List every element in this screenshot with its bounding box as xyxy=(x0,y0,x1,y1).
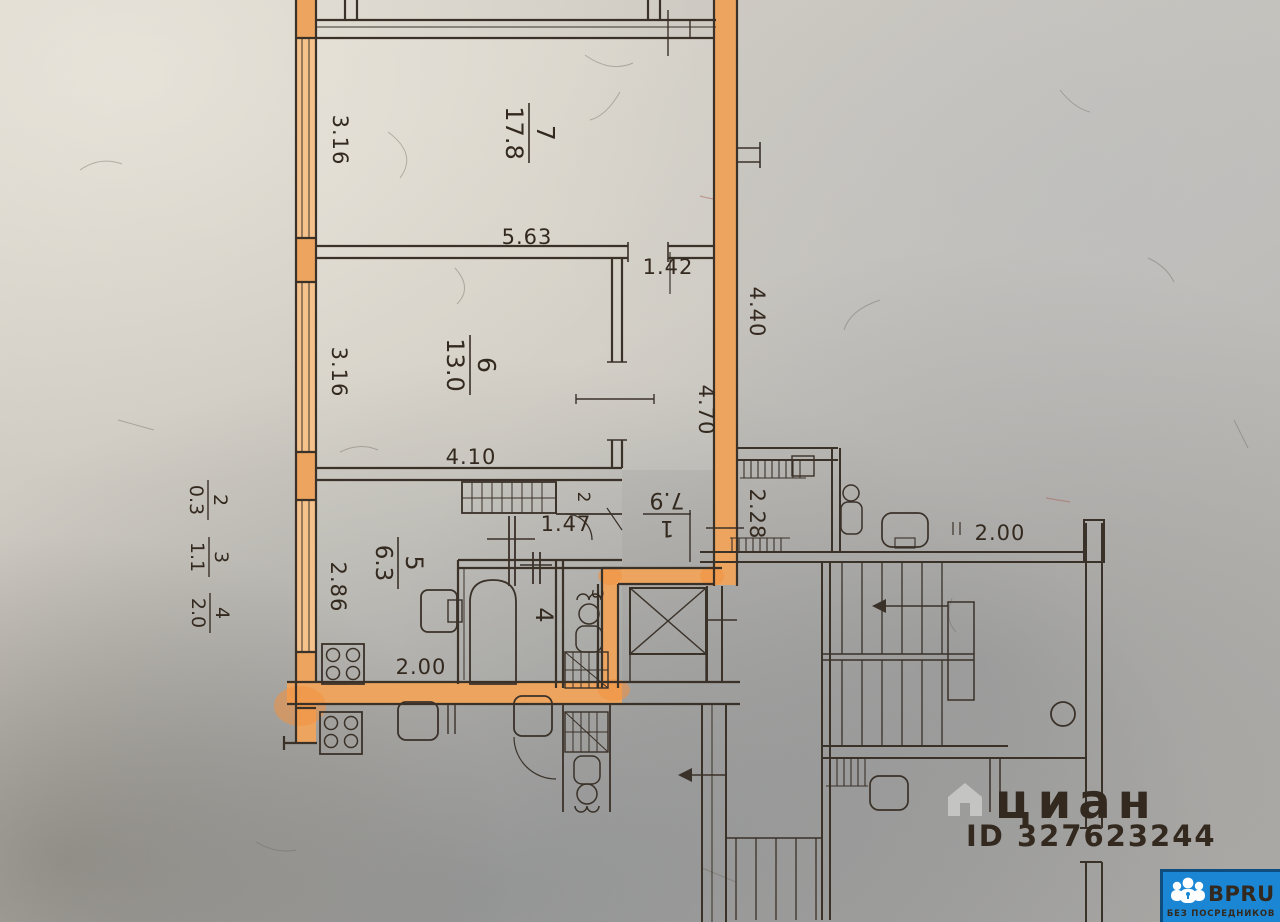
dim-room7-width: 3.16 xyxy=(328,115,352,166)
balcony-4-number: 4 xyxy=(211,607,233,619)
room-1-number: 1 xyxy=(660,515,674,540)
dim-kitchen-width: 2.86 xyxy=(326,562,350,613)
dim-corridor-length: 4.70 xyxy=(694,385,718,436)
badge-brand: BPRU xyxy=(1208,882,1275,906)
balcony-2-area: 0.3 xyxy=(185,485,207,515)
radiator-comb-mid xyxy=(730,538,790,552)
room-6-number: 6 xyxy=(472,357,501,373)
room-6-area: 13.0 xyxy=(441,338,469,391)
dim-kitchen-entry: 1.47 xyxy=(541,512,592,536)
dim-room6-length: 4.10 xyxy=(446,445,497,469)
balcony-2-number: 2 xyxy=(209,494,231,506)
dim-room7-length: 5.63 xyxy=(502,225,553,249)
balcony-3-area: 1.1 xyxy=(186,542,208,572)
room-7-number: 7 xyxy=(531,125,560,141)
room-1-area: 7.9 xyxy=(650,487,685,512)
room-5-area: 6.3 xyxy=(370,545,396,582)
room-7-area: 17.8 xyxy=(500,106,528,159)
floor-plan-drawing: 3.16 5.63 3.16 1.42 4.40 4.70 4.10 1.47 … xyxy=(0,0,1280,922)
dim-stair-hall: 2.28 xyxy=(745,489,769,540)
badge-tagline: БЕЗ ПОСРЕДНИКОВ xyxy=(1167,909,1275,919)
watermark-id: ID 327623244 xyxy=(966,819,1217,853)
room-4-label: 4 xyxy=(530,607,558,622)
bpru-badge: BPRU БЕЗ ПОСРЕДНИКОВ xyxy=(1160,869,1280,922)
room-2-label: 2 xyxy=(573,492,593,503)
balcony-4-area: 2.0 xyxy=(187,598,209,628)
dim-kitchen-length: 2.00 xyxy=(396,655,447,679)
dim-corridor-width: 1.42 xyxy=(643,255,694,279)
floor-plan-photo: 3.16 5.63 3.16 1.42 4.40 4.70 4.10 1.47 … xyxy=(0,0,1280,922)
dim-room6-width: 3.16 xyxy=(327,347,351,398)
dim-landing: 2.00 xyxy=(975,521,1026,545)
room-5-number: 5 xyxy=(400,555,428,570)
balcony-3-number: 3 xyxy=(210,551,232,563)
dim-right-wall: 4.40 xyxy=(745,287,769,338)
room-3-label: 3 xyxy=(588,589,607,599)
